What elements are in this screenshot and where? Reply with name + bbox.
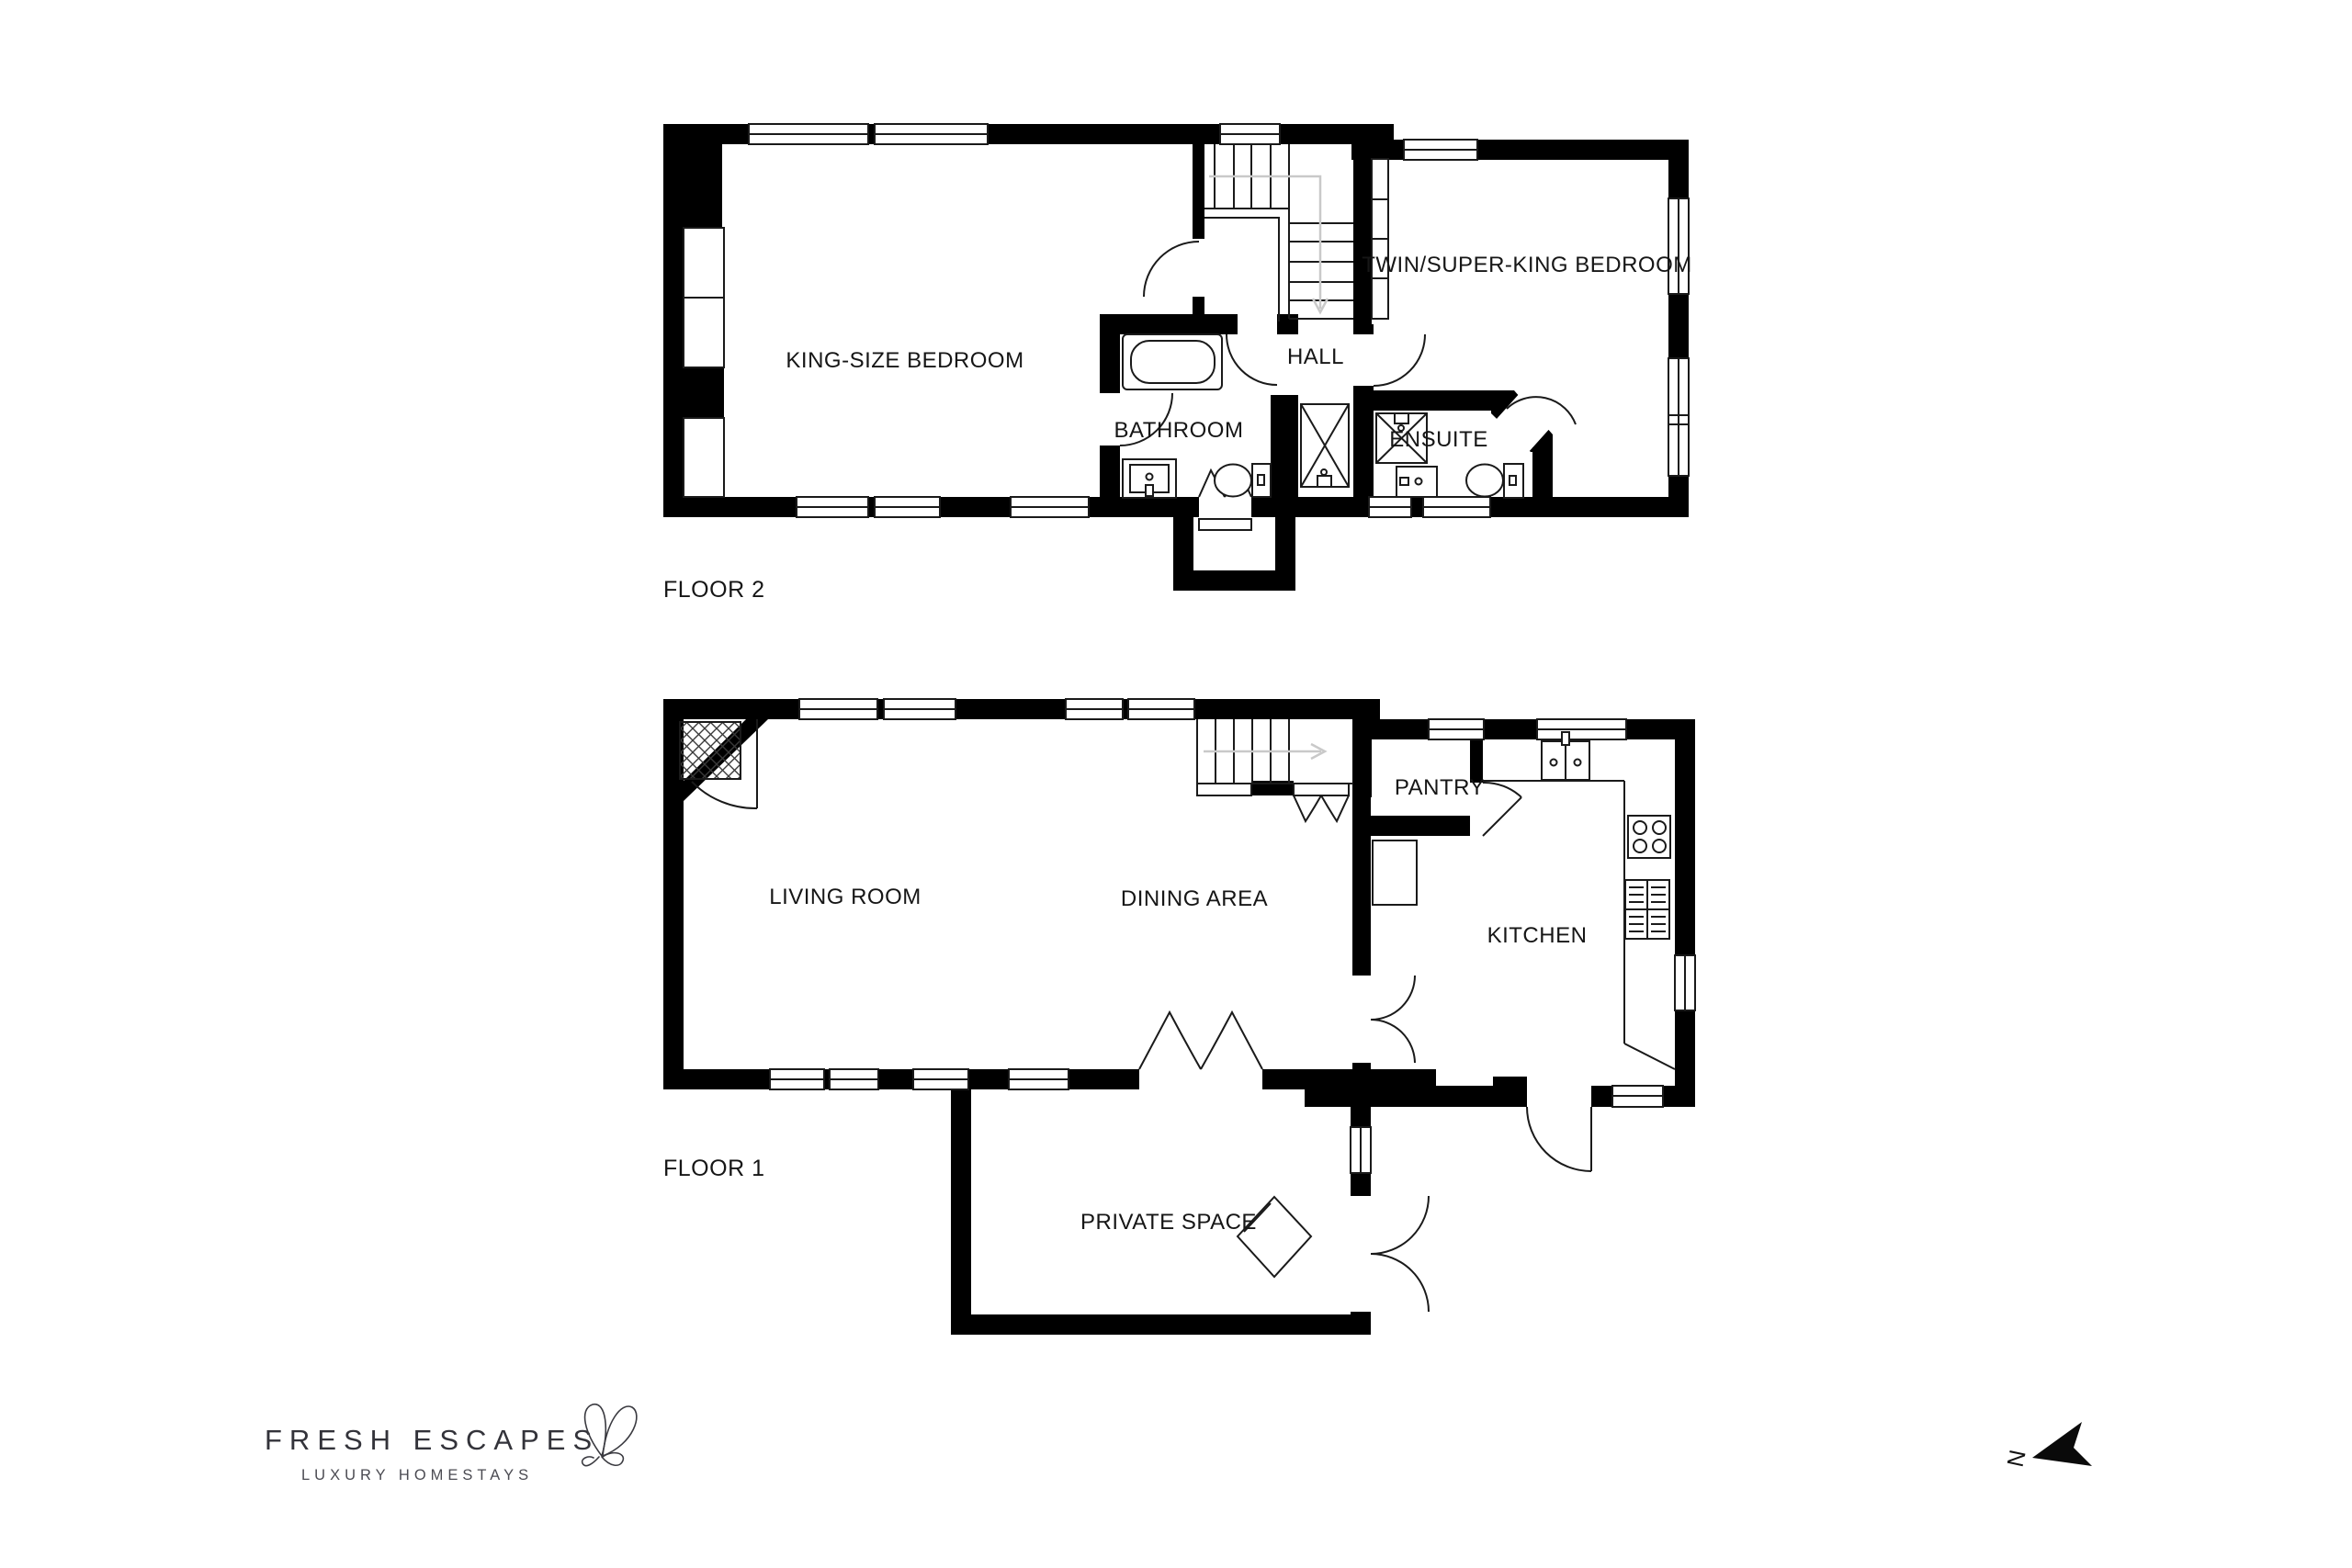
room-label-twin-bedroom: TWIN/SUPER-KING BEDROOM bbox=[1362, 253, 1692, 277]
floorplan-canvas: KING-SIZE BEDROOM HALL BATHROOM ENSUITE … bbox=[0, 0, 2352, 1568]
kitchen-cupboard bbox=[1373, 840, 1417, 905]
floorplan-page: KING-SIZE BEDROOM HALL BATHROOM ENSUITE … bbox=[0, 0, 2352, 1568]
brand-tagline: LUXURY HOMESTAYS bbox=[301, 1467, 533, 1483]
room-label-private-space: PRIVATE SPACE bbox=[1080, 1210, 1257, 1235]
bathroom-sink bbox=[1123, 459, 1176, 498]
floor2-label: FLOOR 2 bbox=[663, 577, 764, 603]
room-label-ensuite: ENSUITE bbox=[1389, 427, 1488, 452]
room-label-pantry: PANTRY bbox=[1395, 775, 1485, 800]
stove-hob bbox=[1628, 816, 1670, 858]
porch-threshold bbox=[1199, 519, 1251, 530]
range-cooker bbox=[1625, 880, 1669, 939]
twin-bedroom-wardrobes bbox=[1372, 159, 1388, 319]
entry-hatch bbox=[680, 722, 741, 779]
ensuite-toilet bbox=[1466, 464, 1523, 498]
ensuite-sink bbox=[1396, 467, 1437, 497]
room-label-kitchen: KITCHEN bbox=[1487, 923, 1588, 948]
king-bedroom-wardrobes bbox=[684, 228, 724, 497]
hall-shower bbox=[1301, 404, 1349, 487]
room-label-king-bedroom: KING-SIZE BEDROOM bbox=[786, 348, 1023, 373]
room-label-bathroom: BATHROOM bbox=[1114, 418, 1244, 443]
room-label-hall: HALL bbox=[1287, 344, 1344, 369]
bathroom-toilet bbox=[1215, 464, 1271, 497]
room-label-dining-area: DINING AREA bbox=[1121, 886, 1268, 911]
bathtub bbox=[1123, 334, 1222, 389]
brand-name: FRESH ESCAPES bbox=[265, 1424, 599, 1456]
room-label-living-room: LIVING ROOM bbox=[769, 885, 922, 909]
floor1-label: FLOOR 1 bbox=[663, 1156, 764, 1181]
